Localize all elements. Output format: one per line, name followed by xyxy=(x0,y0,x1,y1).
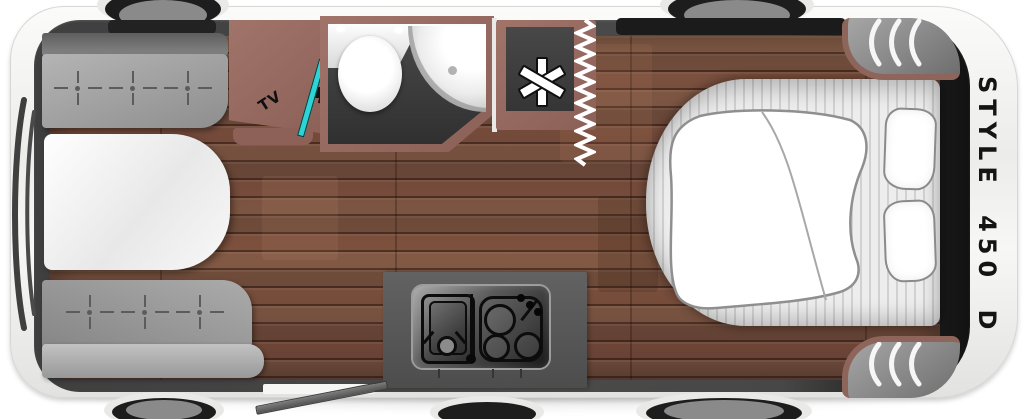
dinette-table xyxy=(44,134,230,270)
ceiling-light-icon xyxy=(452,28,461,34)
ceiling-light-icon xyxy=(394,27,403,33)
duvet xyxy=(655,95,895,320)
hob-burner xyxy=(483,334,510,361)
hob-knob xyxy=(526,301,534,309)
wall-dark-segment xyxy=(616,18,846,35)
vent-slashes-icon xyxy=(848,18,954,68)
hob-burner xyxy=(484,304,516,336)
cabinet-door-line xyxy=(492,369,494,378)
faucet-icon xyxy=(437,336,457,356)
vent-slashes-icon xyxy=(848,342,954,390)
stitch-mark xyxy=(54,71,102,105)
rear-window-icon xyxy=(6,86,46,342)
dinette-backrest-front xyxy=(42,344,264,378)
dinette-bench-rear xyxy=(42,54,228,128)
counter-drain xyxy=(466,354,476,364)
stitch-mark xyxy=(109,71,157,105)
hub xyxy=(126,400,202,419)
hob-burner xyxy=(514,332,542,360)
wood-patch xyxy=(262,176,338,260)
ceiling-light-icon xyxy=(336,26,345,32)
unit-divider xyxy=(470,294,473,360)
caravan-floorplan: TV xyxy=(0,0,1024,419)
dinette-bench-front xyxy=(42,280,252,348)
wall-dark-segment xyxy=(108,20,216,34)
hub xyxy=(664,400,784,419)
pillow xyxy=(883,199,938,283)
fridge-asterisk-icon xyxy=(517,57,563,103)
hob-knob xyxy=(517,294,525,302)
heater-vent-bottom xyxy=(842,336,960,398)
basin-drain xyxy=(448,66,457,75)
stitch-mark xyxy=(121,295,169,329)
heater-vent-top xyxy=(842,18,960,80)
pillow xyxy=(883,107,938,191)
step-shadow xyxy=(438,402,536,419)
cabinet-door-line xyxy=(520,369,522,378)
toilet xyxy=(338,36,402,112)
stitch-mark xyxy=(176,295,224,329)
hob-knob xyxy=(534,308,542,316)
model-label: STYLE 450 D xyxy=(964,76,1010,376)
stitch-mark xyxy=(164,71,212,105)
dinette-backrest-rear xyxy=(42,33,228,56)
stitch-mark xyxy=(66,295,114,329)
entry-zigzag-icon xyxy=(574,18,596,168)
cabinet-door-line xyxy=(438,369,440,378)
